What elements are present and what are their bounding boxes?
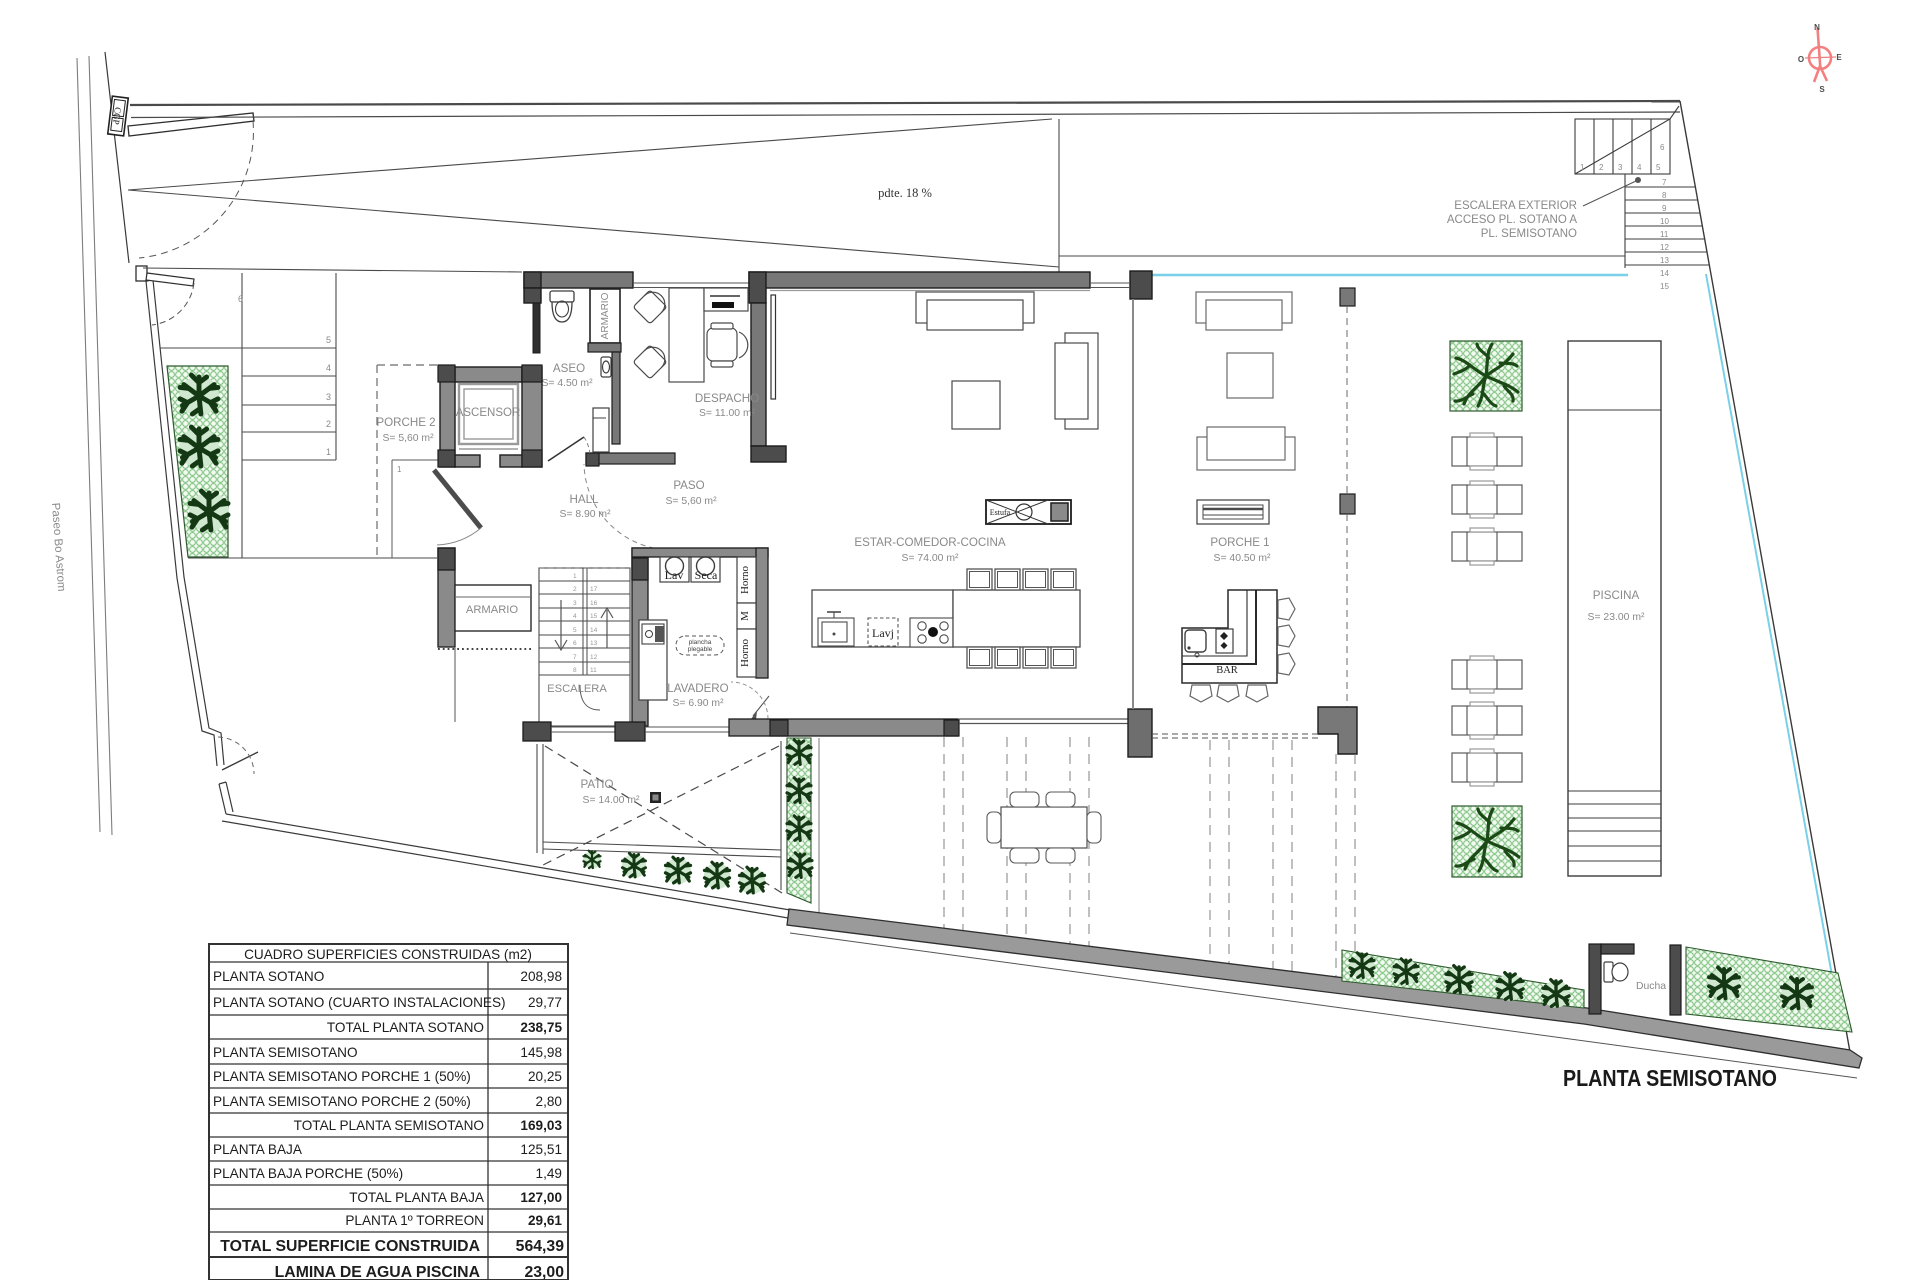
svg-text:PLANTA 1º TORREON: PLANTA 1º TORREON	[345, 1213, 484, 1228]
svg-text:15: 15	[1660, 282, 1669, 291]
svg-text:PASO: PASO	[673, 479, 704, 492]
svg-text:2: 2	[1599, 163, 1604, 172]
svg-text:1,49: 1,49	[536, 1166, 562, 1181]
svg-text:4: 4	[1637, 163, 1642, 172]
svg-text:Lav: Lav	[665, 568, 684, 582]
svg-text:M: M	[739, 611, 751, 621]
svg-text:S= 8.90 m²: S= 8.90 m²	[559, 509, 611, 520]
svg-text:plegable: plegable	[688, 646, 713, 653]
svg-text:PL. SEMISOTANO: PL. SEMISOTANO	[1481, 228, 1577, 240]
svg-text:7: 7	[1662, 178, 1667, 187]
svg-text:12: 12	[590, 654, 598, 661]
svg-text:7: 7	[573, 654, 577, 661]
svg-text:4: 4	[573, 613, 577, 620]
svg-text:PLANTA SEMISOTANO: PLANTA SEMISOTANO	[213, 1045, 358, 1060]
svg-text:Ducha: Ducha	[1636, 981, 1666, 992]
svg-text:plancha: plancha	[689, 639, 712, 646]
svg-text:2,80: 2,80	[536, 1094, 563, 1109]
svg-text:16: 16	[590, 600, 598, 607]
svg-text:145,98: 145,98	[520, 1045, 562, 1060]
svg-text:8: 8	[573, 667, 577, 674]
svg-text:11: 11	[1660, 230, 1669, 239]
svg-text:29,77: 29,77	[528, 995, 562, 1010]
svg-text:238,75: 238,75	[520, 1020, 562, 1035]
svg-text:CUADRO SUPERFICIES CONSTRUIDAS: CUADRO SUPERFICIES CONSTRUIDAS (m2)	[244, 947, 532, 962]
svg-text:S: S	[1819, 85, 1825, 94]
svg-text:14: 14	[1660, 269, 1669, 278]
svg-text:PLANTA BAJA: PLANTA BAJA	[213, 1142, 303, 1157]
svg-text:ARMARIO: ARMARIO	[466, 604, 519, 616]
svg-text:169,03: 169,03	[520, 1118, 562, 1133]
svg-text:11: 11	[590, 667, 597, 674]
svg-text:S= 5,60 m²: S= 5,60 m²	[382, 433, 434, 444]
svg-text:6: 6	[238, 294, 243, 304]
svg-text:TOTAL PLANTA SEMISOTANO: TOTAL PLANTA SEMISOTANO	[294, 1118, 484, 1133]
svg-text:LAVADERO: LAVADERO	[667, 682, 728, 695]
svg-text:Horno: Horno	[739, 638, 751, 667]
svg-text:S= 40.50 m²: S= 40.50 m²	[1214, 553, 1271, 564]
svg-text:PLANTA SOTANO: PLANTA SOTANO	[213, 969, 324, 984]
svg-text:14: 14	[590, 627, 598, 634]
svg-text:3: 3	[326, 392, 331, 402]
svg-text:Seca: Seca	[695, 568, 718, 582]
svg-text:PORCHE 2: PORCHE 2	[376, 416, 435, 429]
svg-text:127,00: 127,00	[520, 1190, 562, 1205]
svg-text:S= 74.00 m²: S= 74.00 m²	[902, 553, 959, 564]
svg-text:2: 2	[326, 419, 331, 429]
svg-text:5: 5	[1656, 163, 1661, 172]
svg-text:Horno: Horno	[739, 565, 751, 594]
svg-text:Lavj: Lavj	[872, 626, 894, 640]
svg-text:ESCALERA: ESCALERA	[547, 683, 607, 695]
svg-text:BAR: BAR	[1216, 665, 1238, 676]
svg-text:S= 5,60 m²: S= 5,60 m²	[665, 496, 717, 507]
svg-text:PATIO: PATIO	[580, 778, 613, 791]
svg-text:12: 12	[1660, 243, 1669, 252]
svg-text:8: 8	[1662, 191, 1667, 200]
svg-text:N: N	[1814, 23, 1820, 32]
svg-text:6: 6	[1660, 143, 1665, 152]
svg-text:15: 15	[590, 613, 598, 620]
svg-text:ESCALERA EXTERIOR: ESCALERA EXTERIOR	[1454, 200, 1577, 212]
svg-text:pdte. 18 %: pdte. 18 %	[878, 186, 932, 200]
svg-text:CGP: CGP	[111, 107, 123, 126]
svg-text:S= 14.00 m²: S= 14.00 m²	[583, 795, 640, 806]
svg-text:PLANTA SOTANO (CUARTO INSTALAC: PLANTA SOTANO (CUARTO INSTALACIONES)	[213, 995, 506, 1010]
svg-text:3: 3	[1618, 163, 1623, 172]
svg-text:13: 13	[1660, 256, 1669, 265]
svg-text:ARMARIO: ARMARIO	[600, 292, 611, 339]
svg-text:17: 17	[590, 586, 598, 593]
svg-text:1: 1	[573, 573, 577, 580]
svg-text:1: 1	[397, 465, 402, 474]
svg-text:S= 4.50 m²: S= 4.50 m²	[541, 378, 593, 389]
svg-text:2: 2	[573, 586, 577, 593]
svg-text:TOTAL PLANTA SOTANO: TOTAL PLANTA SOTANO	[327, 1020, 484, 1035]
svg-text:PLANTA SEMISOTANO: PLANTA SEMISOTANO	[1563, 1065, 1777, 1091]
svg-text:TOTAL PLANTA BAJA: TOTAL PLANTA BAJA	[349, 1190, 485, 1205]
svg-text:PLANTA BAJA PORCHE (50%): PLANTA BAJA PORCHE (50%)	[213, 1166, 403, 1181]
svg-text:5: 5	[573, 627, 577, 634]
svg-text:208,98: 208,98	[520, 969, 562, 984]
svg-text:S= 23.00 m²: S= 23.00 m²	[1588, 612, 1645, 623]
svg-text:ASEO: ASEO	[553, 362, 585, 375]
svg-text:PLANTA SEMISOTANO PORCHE 2 (50: PLANTA SEMISOTANO PORCHE 2 (50%)	[213, 1094, 471, 1109]
svg-text:Estufa: Estufa	[990, 508, 1011, 517]
svg-text:13: 13	[590, 640, 598, 647]
svg-text:23,00: 23,00	[524, 1264, 564, 1280]
svg-text:10: 10	[1660, 217, 1669, 226]
svg-text:S= 6.90 m²: S= 6.90 m²	[672, 698, 724, 709]
svg-text:4: 4	[326, 363, 331, 373]
svg-text:3: 3	[573, 600, 577, 607]
svg-text:ASCENSOR: ASCENSOR	[456, 407, 521, 419]
svg-text:E: E	[1836, 53, 1842, 62]
svg-text:5: 5	[326, 335, 331, 345]
svg-text:ACCESO PL. SOTANO A: ACCESO PL. SOTANO A	[1447, 214, 1577, 226]
svg-text:9: 9	[1662, 204, 1667, 213]
svg-text:O: O	[1798, 55, 1804, 64]
svg-text:564,39: 564,39	[516, 1238, 565, 1255]
svg-text:1: 1	[326, 447, 331, 457]
svg-text:1: 1	[1580, 163, 1585, 172]
svg-text:125,51: 125,51	[520, 1142, 562, 1157]
svg-text:20,25: 20,25	[528, 1069, 562, 1084]
svg-text:DESPACHO: DESPACHO	[695, 392, 759, 405]
svg-text:PLANTA SEMISOTANO PORCHE 1 (50: PLANTA SEMISOTANO PORCHE 1 (50%)	[213, 1069, 471, 1084]
svg-text:PISCINA: PISCINA	[1593, 589, 1640, 602]
svg-text:29,61: 29,61	[528, 1213, 562, 1228]
svg-text:S= 11.00 m²: S= 11.00 m²	[699, 408, 756, 419]
svg-text:PORCHE 1: PORCHE 1	[1210, 536, 1269, 549]
svg-text:ESTAR-COMEDOR-COCINA: ESTAR-COMEDOR-COCINA	[854, 536, 1005, 549]
svg-text:6: 6	[573, 640, 577, 647]
svg-text:LAMINA DE AGUA PISCINA: LAMINA DE AGUA PISCINA	[275, 1264, 480, 1280]
svg-text:TOTAL SUPERFICIE CONSTRUIDA: TOTAL SUPERFICIE CONSTRUIDA	[220, 1238, 480, 1255]
